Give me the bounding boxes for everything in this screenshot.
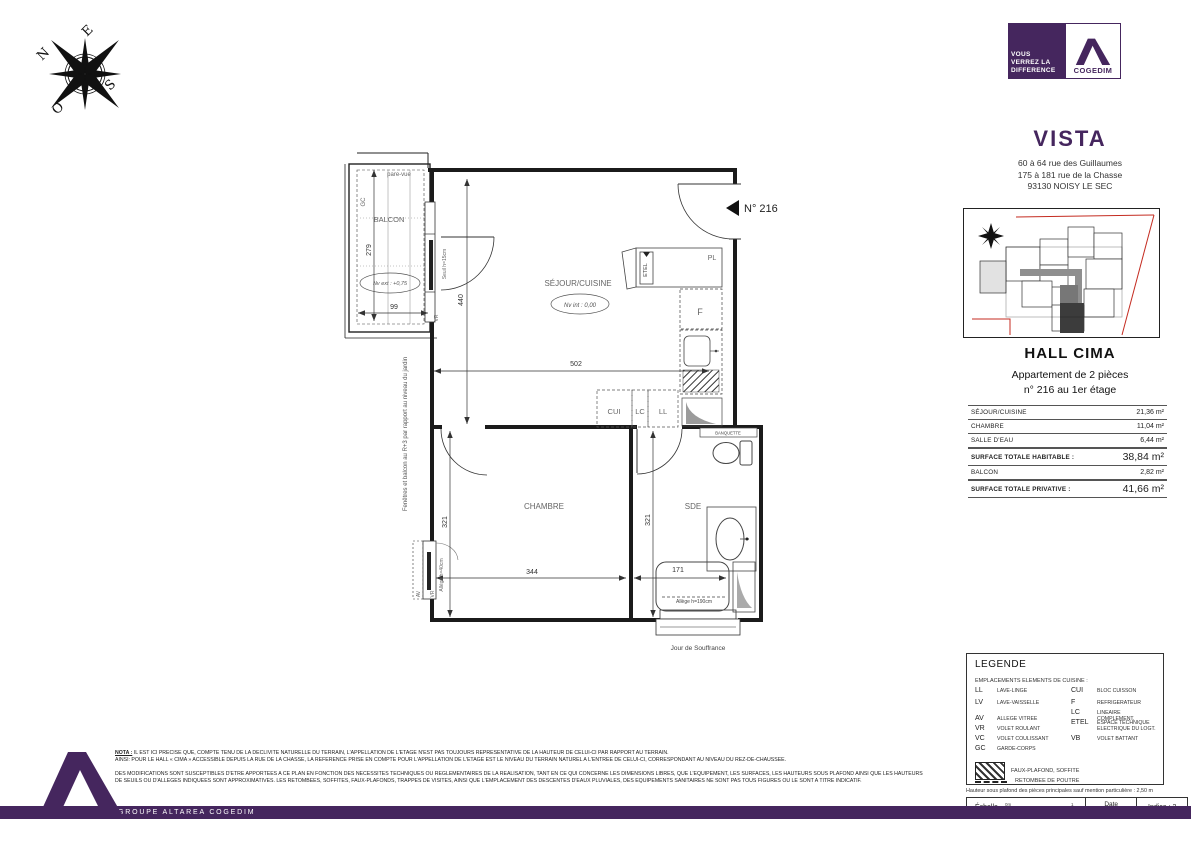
lambda-icon <box>1075 36 1111 66</box>
legend-abbr: VB <box>1071 735 1097 742</box>
legend-item: VCVOLET COULISSANT <box>975 735 1049 742</box>
tagline-line2: VERREZ LA <box>1011 59 1062 67</box>
plan-sheet: { "colors": { "brand_purple": "#45265E",… <box>0 0 1191 842</box>
ceiling-height-note: Hauteur sous plafond des pièces principa… <box>966 788 1190 794</box>
legend-item: GCGARDE-CORPS <box>975 745 1036 752</box>
site-compass-icon <box>978 223 1004 249</box>
area-value: 11,04 m² <box>1137 423 1164 430</box>
legend-abbr: CUI <box>1071 687 1097 694</box>
legend-item: AVALLEGE VITREE <box>975 715 1037 722</box>
legend-abbr: AV <box>975 715 997 722</box>
modifications-paragraph: DES MODIFICATIONS SONT SUSCEPTIBLES D'ET… <box>115 771 923 785</box>
label-vr-window: VR <box>430 590 436 597</box>
legend-abbr: F <box>1071 699 1097 706</box>
dash-swatch-icon <box>975 781 1007 783</box>
nota-line2: AINSI: POUR LE HALL « CIMA » ACCESSIBLE … <box>115 757 786 763</box>
label-chambre: CHAMBRE <box>524 502 564 511</box>
dim-502: 502 <box>570 361 582 368</box>
apartment-unit: n° 216 au 1er étage <box>955 383 1185 398</box>
legend-def: VOLET BATTANT <box>1097 735 1138 742</box>
legend-abbr: ETEL <box>1071 719 1097 726</box>
dash-swatch-label: RETOMBEE DE POUTRE <box>1015 778 1079 784</box>
label-pl: PL <box>708 255 717 262</box>
table-row-total: SURFACE TOTALE PRIVATIVE :41,66 m² <box>968 480 1167 498</box>
logo-mark: COGEDIM <box>1065 23 1121 79</box>
area-value: 41,66 m² <box>1123 483 1164 495</box>
table-row: BALCON2,82 m² <box>968 466 1167 480</box>
label-seuil: Seuil h=15cm <box>442 249 448 279</box>
legend-box: LEGENDE EMPLACEMENTS ELEMENTS DE CUISINE… <box>966 653 1164 785</box>
legend-abbr: LC <box>1071 709 1097 716</box>
legend-def: LAVE-VAISSELLE <box>997 699 1039 706</box>
legend-def: VOLET COULISSANT <box>997 735 1049 742</box>
doors-windows-layer <box>413 184 741 635</box>
site-plan-drawing <box>964 209 1159 337</box>
dim-171: 171 <box>672 567 684 574</box>
legend-def: ALLEGE VITREE <box>997 715 1037 722</box>
area-label: SÉJOUR/CUISINE <box>971 409 1027 416</box>
logo-name: COGEDIM <box>1074 66 1113 75</box>
footer-bar: GROUPE ALTAREA COGEDIM <box>0 806 1191 819</box>
label-banquette: BANQUETTE <box>715 431 741 436</box>
legend-title: LEGENDE <box>975 659 1026 670</box>
compass-n: N <box>34 45 53 64</box>
legend-def: LAVE-LINGE <box>997 687 1027 694</box>
unit-marker-arrow-icon <box>726 200 739 216</box>
label-niv-int: Nv int : 0,00 <box>564 303 597 309</box>
dim-279: 279 <box>366 244 373 256</box>
legend-abbr: LV <box>975 699 997 706</box>
legend-item: ETELESPACE TECHNIQUE ELECTRIQUE DU LOGT. <box>1071 719 1159 732</box>
address-line2: 175 à 181 rue de la Chasse <box>955 170 1185 182</box>
footer-group-name: GROUPE ALTAREA COGEDIM <box>118 809 255 816</box>
label-balcon: BALCON <box>374 215 405 224</box>
nota-line1: IL EST ICI PRECISE QUE, COMPTE TENU DE L… <box>134 750 669 756</box>
table-row: SÉJOUR/CUISINE21,36 m² <box>968 405 1167 420</box>
label-allege-40: Allège h=40cm <box>439 558 445 591</box>
legend-def: VOLET ROULANT <box>997 725 1040 732</box>
label-pare-vue: pare-vue <box>387 172 411 178</box>
project-address: 60 à 64 rue des Guillaumes 175 à 181 rue… <box>955 158 1185 193</box>
label-sde: SDE <box>685 502 701 511</box>
hatch-swatch-icon <box>975 762 1005 780</box>
label-lc: LC <box>635 407 645 416</box>
label-f: F <box>697 307 703 317</box>
apartment-type: Appartement de 2 pièces <box>955 368 1185 383</box>
compass-rose-icon: N E S O <box>26 16 146 136</box>
legend-abbr: LL <box>975 687 997 694</box>
label-niv-ext: Nv ext : +0,75 <box>373 281 408 287</box>
legend-item: LVLAVE-VAISSELLE <box>975 699 1039 706</box>
compass-e: E <box>79 23 96 40</box>
label-sejour: SÉJOUR/CUISINE <box>544 279 611 288</box>
legend-item: VRVOLET ROULANT <box>975 725 1040 732</box>
label-gc: GC <box>361 197 367 207</box>
dim-440: 440 <box>458 294 465 306</box>
areas-table: SÉJOUR/CUISINE21,36 m² CHAMBRE11,04 m² S… <box>968 405 1167 498</box>
hall-title: HALL CIMA <box>955 345 1185 362</box>
project-name: VISTA <box>955 126 1185 152</box>
area-label: BALCON <box>971 469 998 476</box>
area-value: 6,44 m² <box>1140 437 1164 444</box>
legend-item: LLLAVE-LINGE <box>975 687 1027 694</box>
area-value: 38,84 m² <box>1123 451 1164 463</box>
table-row: CHAMBRE11,04 m² <box>968 420 1167 434</box>
legend-item: VBVOLET BATTANT <box>1071 735 1138 742</box>
legend-subtitle: EMPLACEMENTS ELEMENTS DE CUISINE : <box>975 678 1088 684</box>
logo-tagline: VOUS VERREZ LA DIFFERENCE <box>1008 23 1065 79</box>
label-unit-number: N° 216 <box>744 203 778 215</box>
legend-item: CUIBLOC CUISSON <box>1071 687 1136 694</box>
label-ll: LL <box>659 407 667 416</box>
hatch-swatch-label: FAUX-PLAFOND, SOFFITE <box>1011 768 1079 774</box>
table-row: SALLE D'EAU6,44 m² <box>968 434 1167 448</box>
walls-layer <box>428 168 763 622</box>
label-allege-190: Allège h=190cm <box>676 599 712 605</box>
legend-def: REFRIGERATEUR <box>1097 699 1141 706</box>
area-value: 21,36 m² <box>1136 409 1164 416</box>
address-line1: 60 à 64 rue des Guillaumes <box>955 158 1185 170</box>
footer-lambda-icon <box>36 748 126 818</box>
cogedim-logo: VOUS VERREZ LA DIFFERENCE COGEDIM <box>1008 23 1121 79</box>
tagline-line3: DIFFERENCE <box>1011 67 1062 75</box>
tagline-line1: VOUS <box>1011 51 1062 59</box>
legend-abbr: GC <box>975 745 997 752</box>
floor-plan: pare-vue GC BALCON 279 Nv ext : +0,75 99… <box>330 140 800 660</box>
compass-o: O <box>49 100 67 118</box>
apartment-subtitle: Appartement de 2 pièces n° 216 au 1er ét… <box>955 368 1185 398</box>
label-cui: CUI <box>608 407 621 416</box>
dim-321-right: 321 <box>645 514 652 526</box>
label-av: AV <box>416 590 422 597</box>
area-value: 2,82 m² <box>1140 469 1164 476</box>
label-window-note: Fenêtres et balcon au R+3 par rapport au… <box>403 357 409 511</box>
nota-paragraph: NOTA : IL EST ICI PRECISE QUE, COMPTE TE… <box>115 750 923 764</box>
label-etel: ETEL <box>643 263 649 277</box>
dim-321-left: 321 <box>442 516 449 528</box>
label-jour-de-souffrance: Jour de Souffrance <box>671 645 726 652</box>
legend-def: ESPACE TECHNIQUE ELECTRIQUE DU LOGT. <box>1097 719 1159 732</box>
area-label: SALLE D'EAU <box>971 437 1013 444</box>
site-plan-thumbnail <box>963 208 1160 338</box>
legend-abbr: VC <box>975 735 997 742</box>
dim-344: 344 <box>526 569 538 576</box>
legend-item: FREFRIGERATEUR <box>1071 699 1141 706</box>
table-row-total: SURFACE TOTALE HABITABLE :38,84 m² <box>968 448 1167 466</box>
legend-def: GARDE-CORPS <box>997 745 1036 752</box>
address-line3: 93130 NOISY LE SEC <box>955 181 1185 193</box>
area-label: CHAMBRE <box>971 423 1004 430</box>
legend-def: BLOC CUISSON <box>1097 687 1136 694</box>
label-vr-door: VR <box>434 314 440 321</box>
notes: NOTA : IL EST ICI PRECISE QUE, COMPTE TE… <box>115 750 923 792</box>
area-label: SURFACE TOTALE PRIVATIVE : <box>971 486 1071 493</box>
area-label: SURFACE TOTALE HABITABLE : <box>971 454 1074 461</box>
legend-abbr: VR <box>975 725 997 732</box>
dim-99: 99 <box>390 304 398 311</box>
